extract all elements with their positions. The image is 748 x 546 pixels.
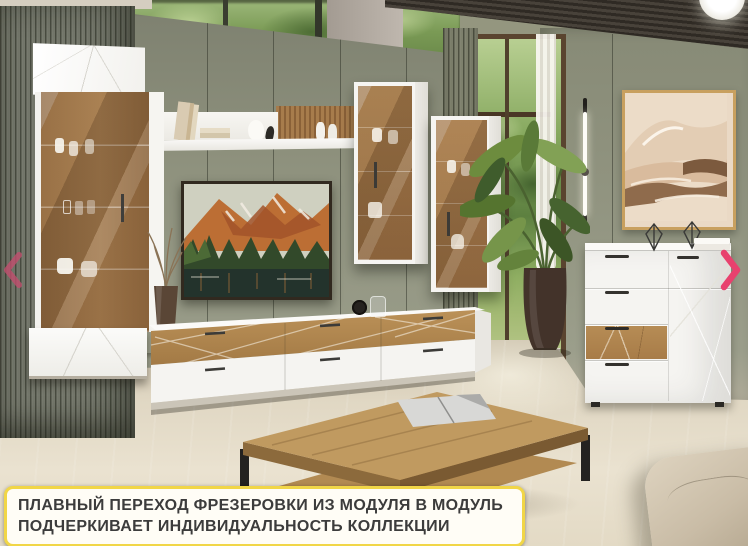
- cabinet1-door-handle: [374, 162, 377, 188]
- caption-line-2: ПОДЧЕРКИВАЕТ ИНДИВИДУАЛЬНОСТЬ КОЛЛЕКЦИИ: [18, 516, 512, 537]
- dune-painting-image: [625, 93, 727, 221]
- tall-cabinet-glassware: [63, 200, 71, 214]
- book-stack: [694, 238, 730, 244]
- table-clock: [352, 300, 367, 315]
- potted-plant: [460, 110, 590, 360]
- glass-cloche: [370, 296, 386, 317]
- chest-of-drawers: [585, 243, 731, 403]
- shelf-vase: [316, 122, 325, 140]
- cabinet2-shelf-item: [447, 160, 456, 173]
- cabinet1-shelf-item: [372, 128, 382, 142]
- cabinet1-side-face: [415, 82, 428, 264]
- cabinet1-glass-door: [358, 86, 412, 260]
- chest-handle: [677, 256, 699, 259]
- cabinet1-shelf-item: [368, 202, 382, 218]
- wall-shelf: [148, 98, 362, 156]
- chest-handle: [605, 255, 629, 258]
- chest-door-divider: [668, 251, 669, 401]
- plant-pot-shadow: [519, 348, 571, 358]
- chest-drawer-divider: [585, 360, 668, 361]
- tall-cabinet-handle: [121, 194, 124, 222]
- tall-cabinet-base-box: [29, 328, 147, 379]
- tall-cabinet-top-box: [33, 42, 145, 98]
- chest-drawer-divider: [585, 324, 668, 325]
- tall-cabinet-shelf-item: [57, 258, 73, 274]
- wire-decor: [644, 220, 708, 252]
- wall-display-cabinet-1: [354, 82, 428, 264]
- dune-painting: [622, 90, 736, 230]
- tall-display-cabinet: [33, 42, 145, 382]
- chevron-right-icon: [724, 253, 737, 287]
- chevron-left-icon: [7, 255, 19, 285]
- tall-cabinet-shelf-item: [55, 138, 64, 153]
- tv-landscape-image: [181, 181, 332, 300]
- table-leg-right: [581, 435, 590, 481]
- cabinet2-door-handle: [447, 212, 450, 236]
- wall-tv-picture: [181, 181, 332, 300]
- carousel-next-button[interactable]: [718, 248, 742, 292]
- caption-line-1: ПЛАВНЫЙ ПЕРЕХОД ФРЕЗЕРОВКИ ИЗ МОДУЛЯ В М…: [18, 495, 512, 516]
- carousel-prev-button[interactable]: [2, 250, 24, 290]
- showroom-photo: ПЛАВНЫЙ ПЕРЕХОД ФРЕЗЕРОВКИ ИЗ МОДУЛЯ В М…: [0, 0, 748, 546]
- shelf-book-stack: [200, 128, 230, 133]
- chest-wood-drawer: [586, 326, 667, 359]
- caption-box: ПЛАВНЫЙ ПЕРЕХОД ФРЕЗЕРОВКИ ИЗ МОДУЛЯ В М…: [4, 486, 525, 546]
